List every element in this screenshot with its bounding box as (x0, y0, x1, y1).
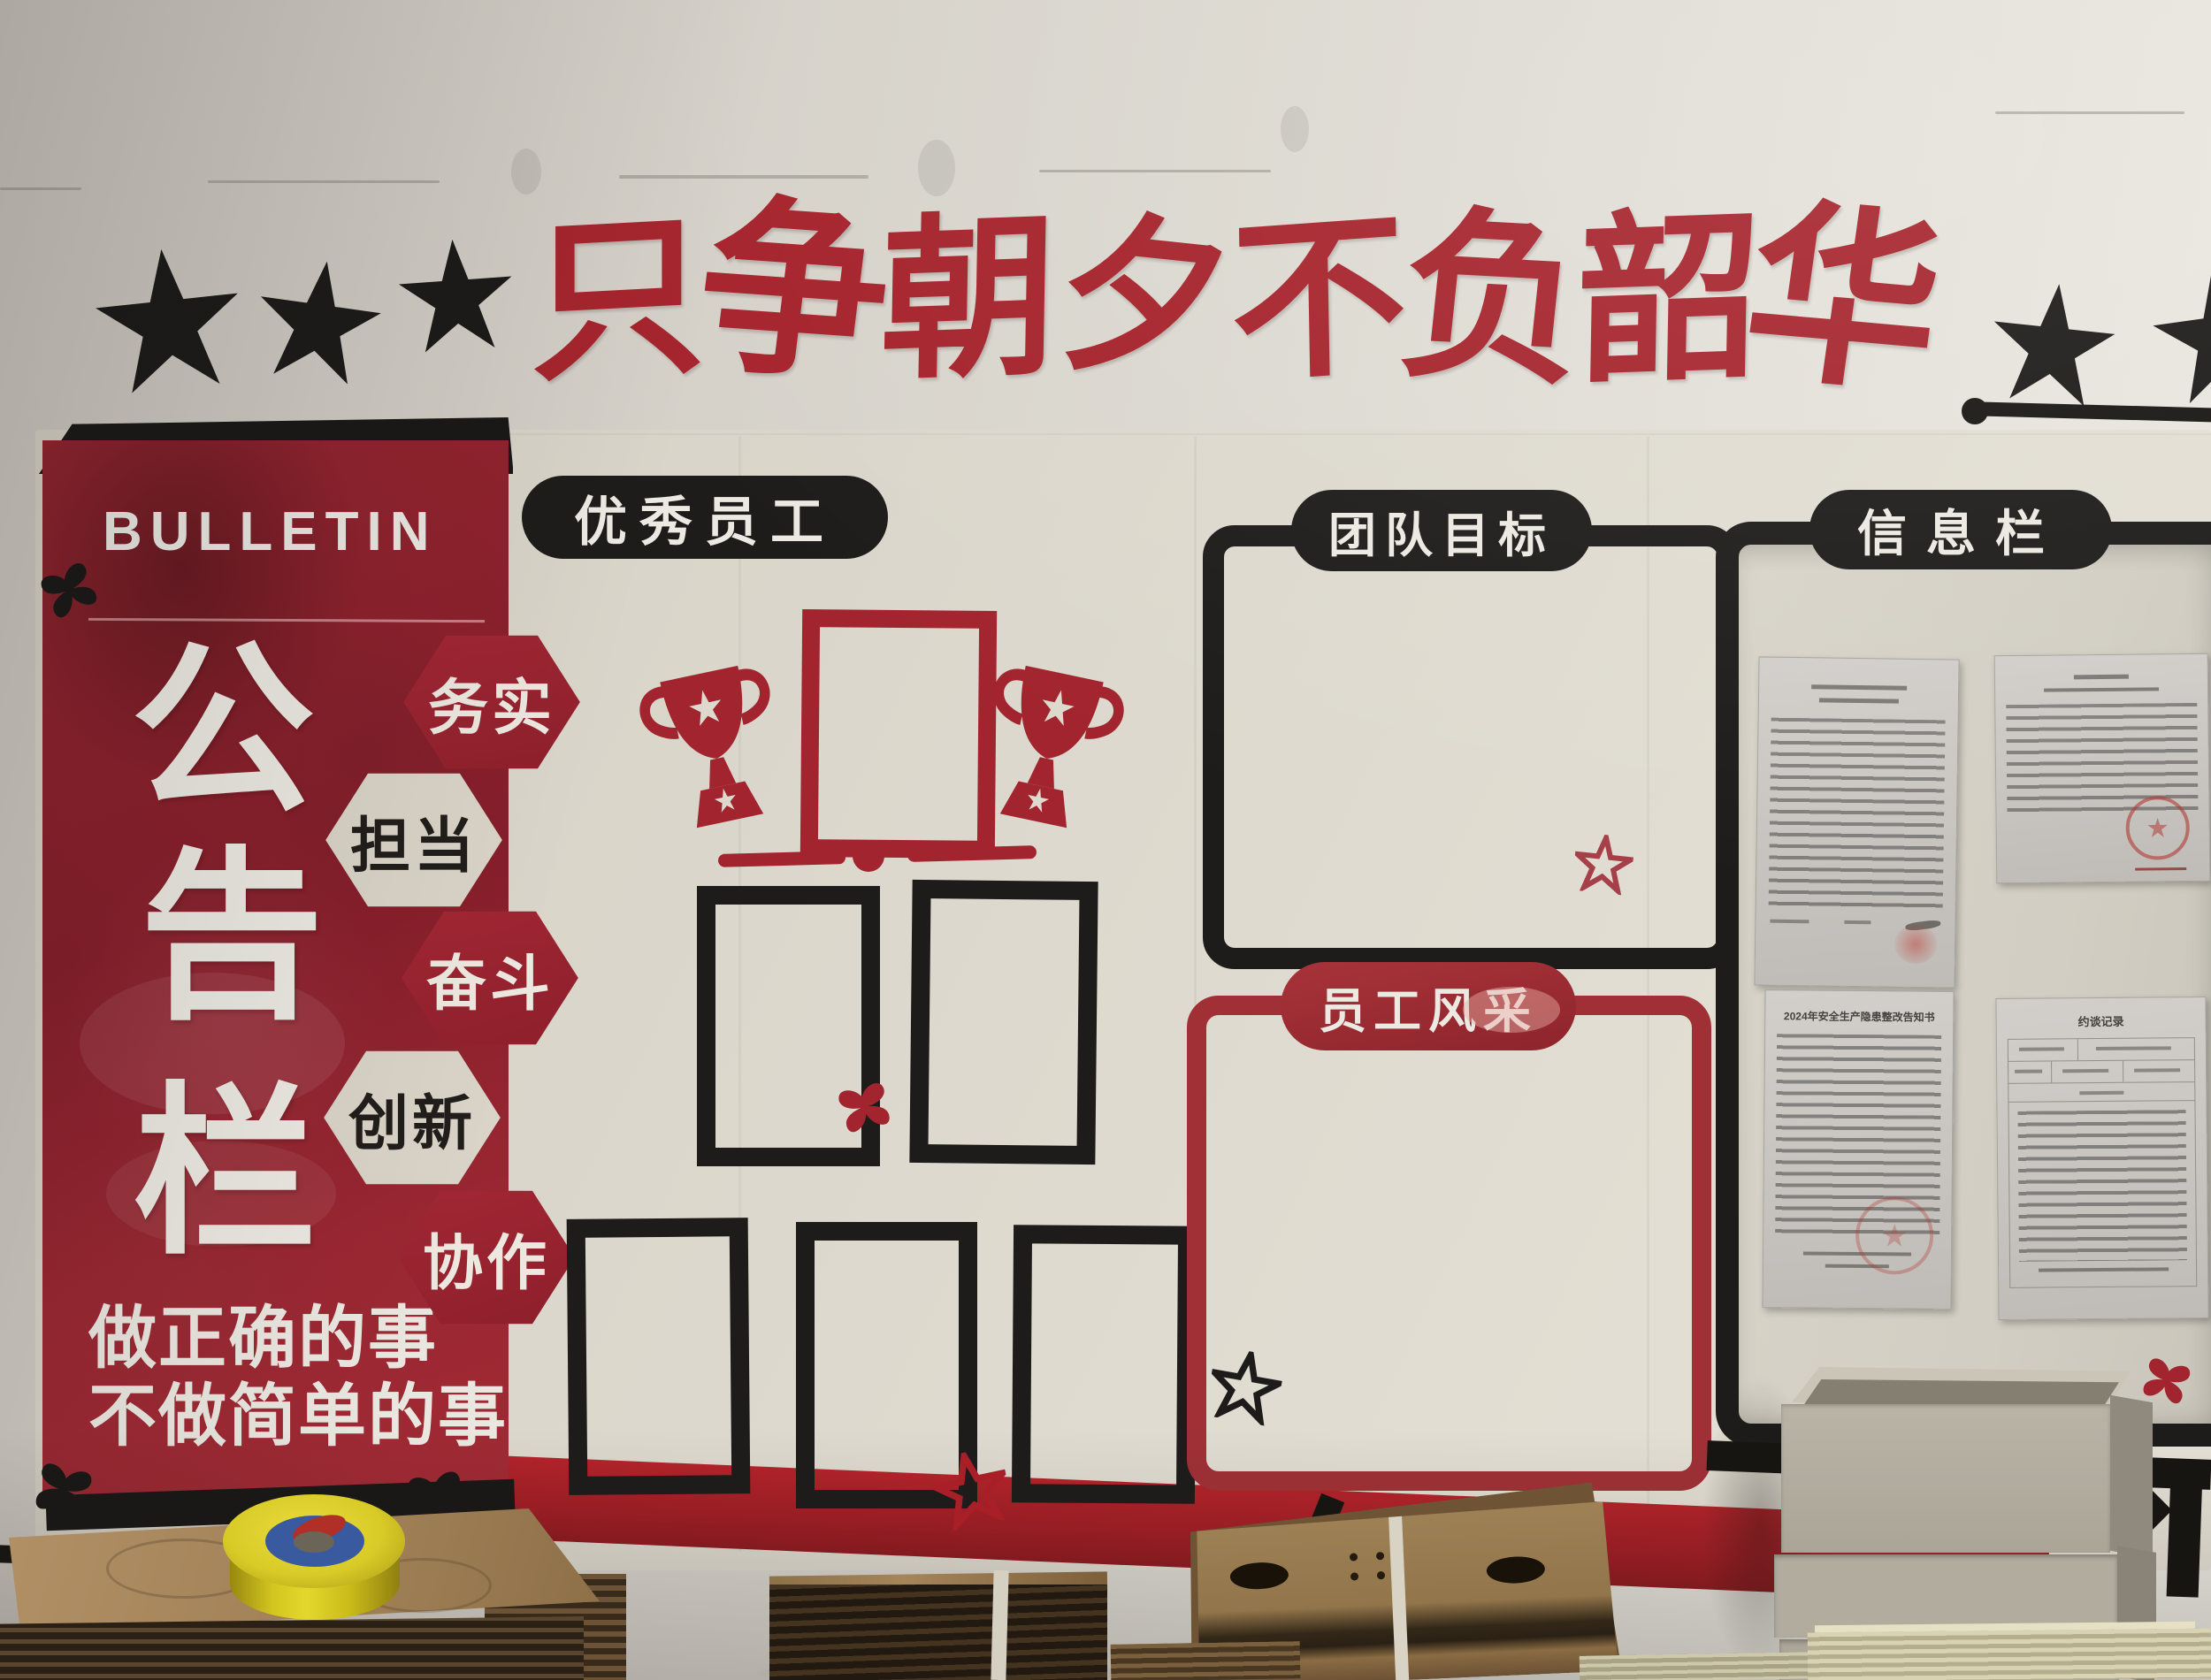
badge-label: 务实 (428, 659, 555, 746)
title-char: 韶 (1576, 205, 1762, 393)
cardboard-bundle-lower (1111, 1641, 1301, 1680)
table-cell (2078, 1038, 2194, 1060)
table-row (2008, 1060, 2194, 1084)
pipe-decor (2167, 1474, 2203, 1597)
table-cell (2008, 1082, 2194, 1102)
banner-info-board: 信息栏 (1809, 490, 2112, 569)
dot-line-icon (1985, 402, 2211, 423)
doc-title-line (2074, 675, 2129, 680)
stamp-star-icon (1882, 1223, 1907, 1248)
photo-frame-red (800, 609, 997, 859)
wall-mark (1039, 170, 1271, 172)
bulletin-heading: BULLETIN (103, 500, 438, 563)
photo-frame-black (567, 1218, 751, 1495)
slogan-title: 只 争 朝 夕 不 负 韶 华 (525, 193, 1890, 405)
pill-wear (1463, 987, 1560, 1033)
title-char: 负 (1393, 202, 1595, 395)
doc-body-lines (2018, 1110, 2187, 1262)
title-char: 华 (1735, 195, 1953, 403)
carton-hand-hole (1486, 1555, 1545, 1585)
carton-vent-hole (1350, 1553, 1358, 1561)
title-char: 不 (1229, 205, 1408, 392)
banner-label: 信息栏 (1857, 494, 2064, 566)
document-commendation (1994, 653, 2211, 884)
title-char: 只 (531, 207, 706, 391)
badge-label: 奋斗 (426, 935, 554, 1022)
table-row (2008, 1038, 2194, 1062)
banner-label: 团队目标 (1328, 496, 1555, 566)
table-cell (2008, 1039, 2079, 1061)
star-icon (392, 233, 520, 361)
team-goals-frame (1203, 525, 1739, 969)
table-cell (2052, 1061, 2123, 1083)
cardboard-stack-front (0, 1616, 584, 1680)
carton-vent-hole (1376, 1552, 1384, 1560)
wall-mark (0, 187, 81, 190)
carton-vent-hole (1377, 1571, 1385, 1579)
table-cell (2008, 1061, 2052, 1082)
doc-field-line (1844, 920, 1871, 924)
star-outline-icon (1572, 832, 1636, 897)
star-icon (246, 250, 392, 396)
carton-vent-hole (1350, 1572, 1358, 1580)
tape-hole (294, 1531, 334, 1553)
bundle-strap (991, 1570, 1008, 1680)
doc-table (2008, 1037, 2197, 1288)
doc-stamp (1894, 925, 1938, 965)
panel-char-gong: 公 (131, 638, 315, 822)
title-char: 夕 (1045, 204, 1242, 393)
star-icon (1982, 275, 2123, 416)
title-char: 争 (689, 190, 900, 392)
wall-mark (1995, 111, 2184, 114)
star-outline-icon (927, 1445, 1015, 1533)
badge-label: 协作 (423, 1214, 550, 1302)
carton-strap (1389, 1510, 1409, 1680)
document-notice (1754, 656, 1959, 988)
doc-title-text: 约谈记录 (1997, 1012, 2206, 1030)
wall-mark (208, 180, 440, 183)
table-row (2008, 1082, 2194, 1103)
doc-stamp (1855, 1196, 1934, 1275)
star-icon (85, 238, 252, 405)
board-seam (509, 433, 2211, 435)
doc-footer-line (2039, 1267, 2169, 1271)
photo-frame-black (909, 880, 1098, 1165)
factory-culture-wall-photo: 只 争 朝 夕 不 负 韶 华 BULLETIN 公 告 栏 做正确的事 不做简… (0, 0, 2211, 1680)
doc-stamp (2125, 796, 2190, 860)
divider-dot (853, 840, 884, 872)
cardboard-bundle (769, 1585, 1107, 1680)
badge-label: 创新 (348, 1074, 476, 1162)
document-safety-notice: 2024年安全生产隐患整改告知书 (1762, 989, 1954, 1310)
doc-body-lines (2006, 703, 2198, 813)
panel-slogan-line2: 不做简单的事 (88, 1362, 508, 1460)
doc-title-line (1811, 684, 1907, 691)
gray-box-side (2110, 1395, 2153, 1558)
panel-char-gao: 告 (140, 845, 324, 1029)
document-interview-record: 约谈记录 (1995, 997, 2208, 1320)
stamp-star-icon (2147, 817, 2169, 838)
doc-date-line (2135, 867, 2186, 871)
doc-title-line (2044, 687, 2159, 691)
star-outline-icon (1205, 1346, 1287, 1428)
wall-smudge (918, 140, 955, 196)
photo-frame-black (1012, 1225, 1197, 1503)
table-cell (2123, 1060, 2194, 1082)
panel-char-lan: 栏 (133, 1081, 317, 1264)
doc-field-line (1770, 920, 1809, 924)
doc-title-line (1818, 698, 1898, 703)
title-char: 朝 (879, 209, 1058, 390)
banner-excellent-staff: 优秀员工 (522, 476, 888, 559)
carton-hand-hole (1229, 1562, 1289, 1591)
badge-label: 担当 (350, 797, 478, 884)
doc-body-lines (1769, 718, 1946, 910)
doc-title-text: 2024年安全生产隐患整改告知书 (1765, 1008, 1953, 1025)
star-icon (2142, 256, 2211, 416)
banner-label: 优秀员工 (574, 479, 836, 556)
banner-staff-style: 员工风采 (1281, 962, 1576, 1050)
sheet-stack (1808, 1629, 2211, 1680)
wall-smudge (511, 149, 541, 195)
wall-smudge (1281, 106, 1309, 152)
gray-box-front (1781, 1404, 2110, 1553)
banner-team-goals: 团队目标 (1291, 490, 1592, 571)
